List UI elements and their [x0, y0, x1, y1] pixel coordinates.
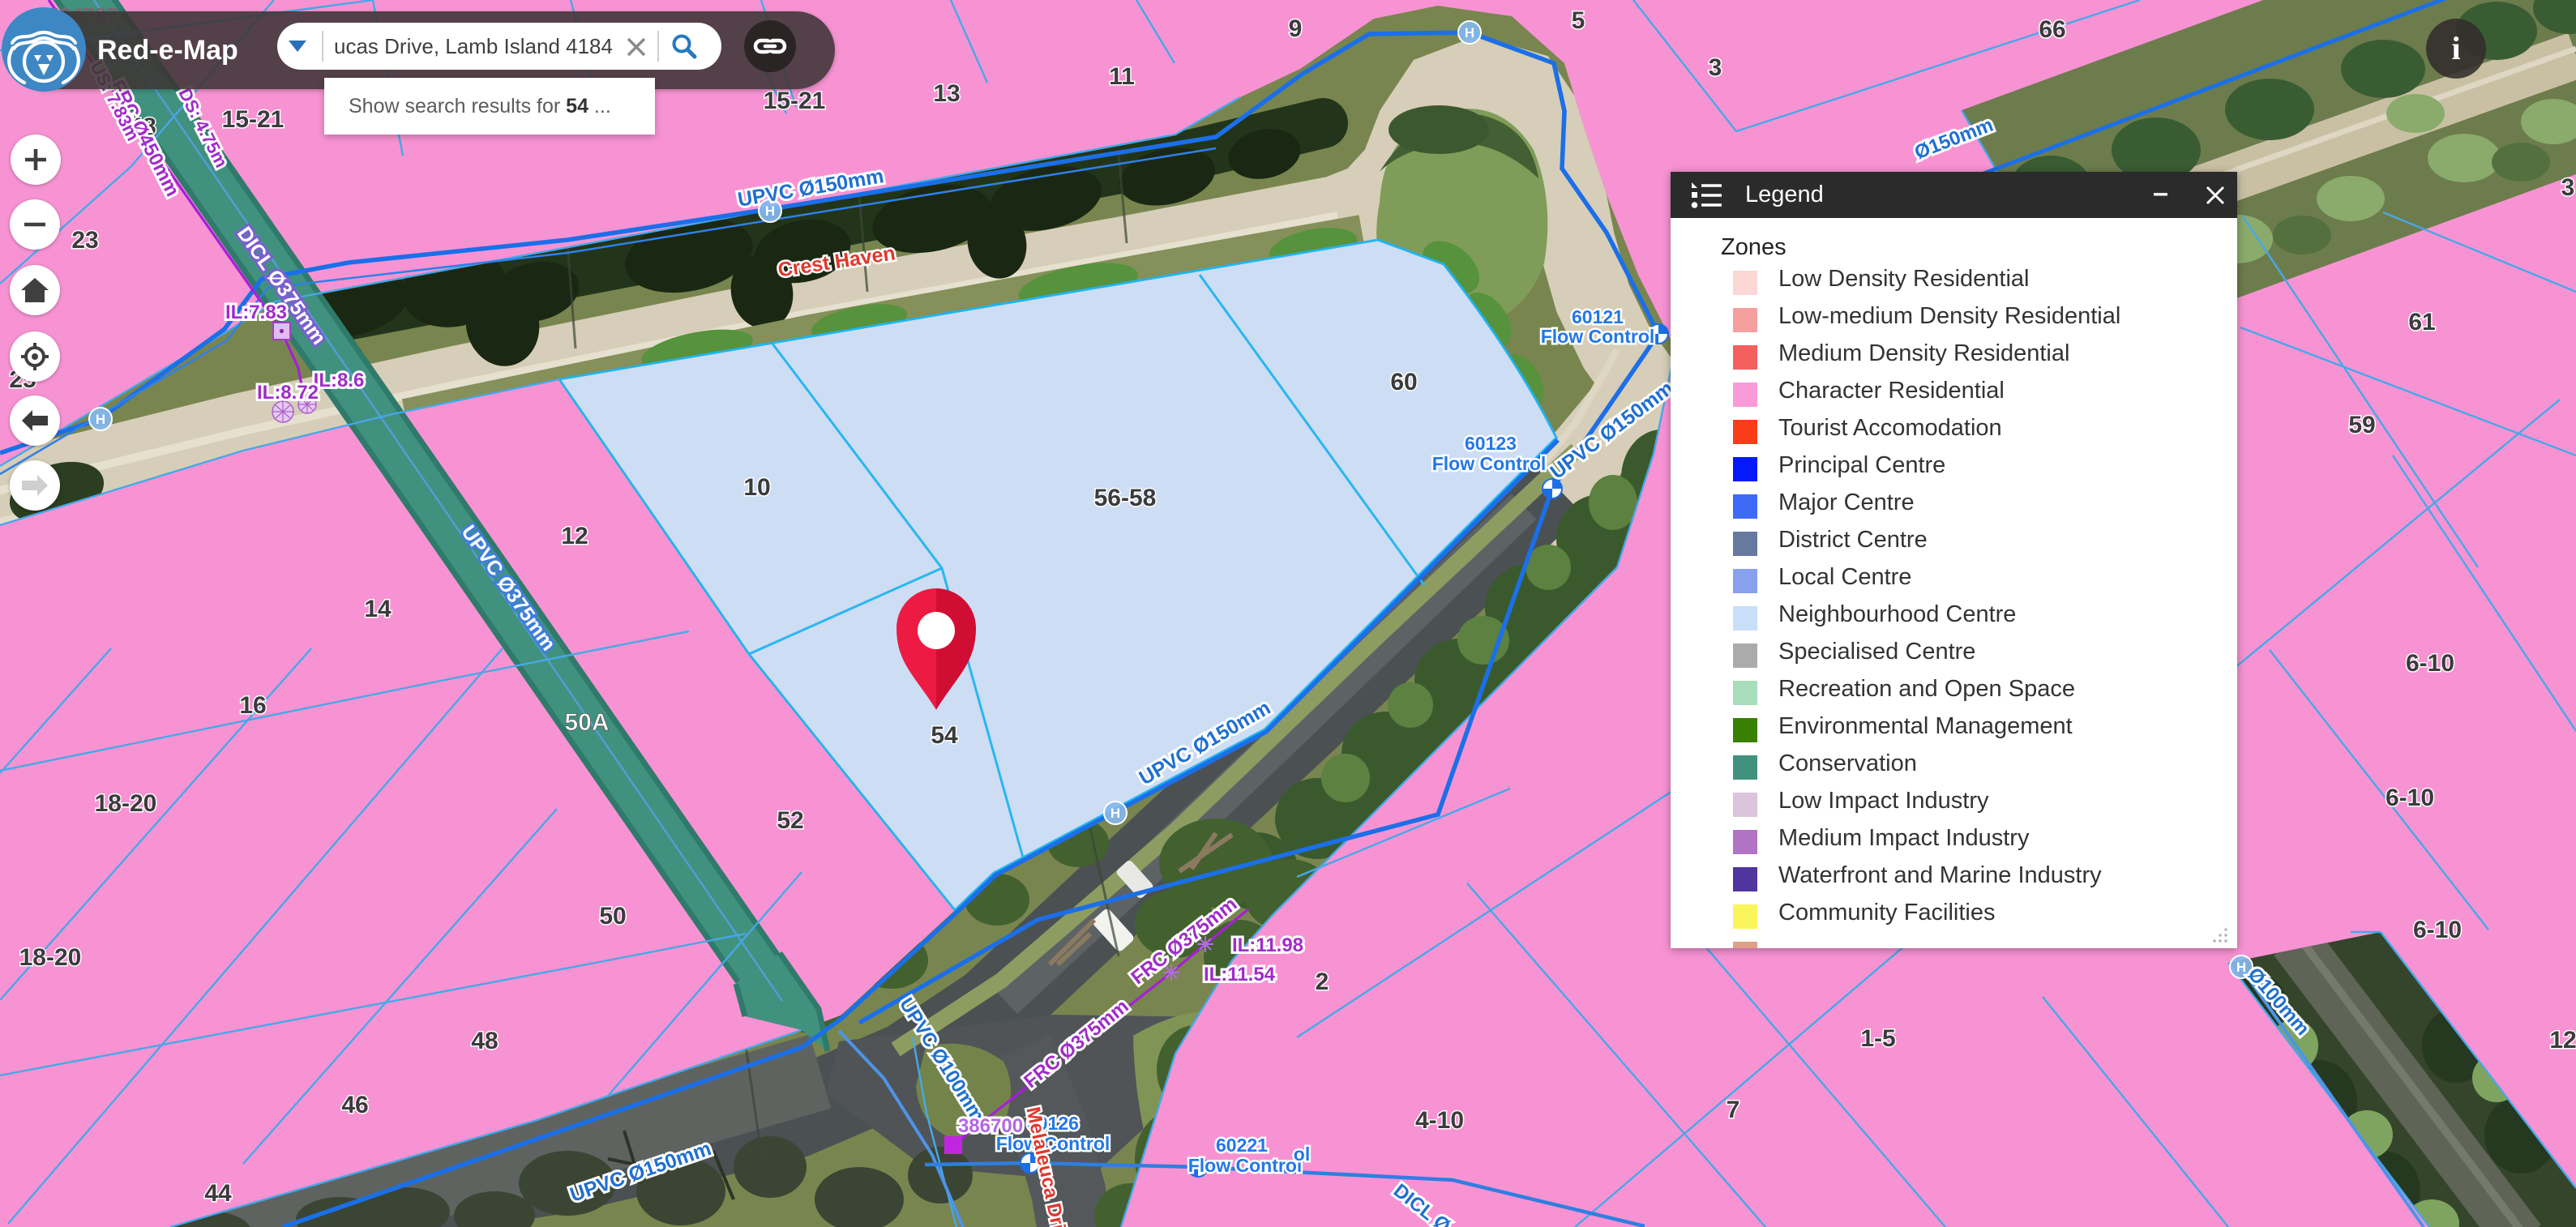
svg-text:H: H [1465, 25, 1474, 41]
svg-text:ol: ol [1294, 1144, 1310, 1165]
svg-text:13: 13 [933, 80, 960, 107]
svg-text:IL:8.6: IL:8.6 [314, 370, 365, 391]
svg-text:Flow Control: Flow Control [1432, 453, 1547, 474]
svg-text:IL:7.83: IL:7.83 [225, 301, 287, 323]
svg-text:60123: 60123 [1465, 433, 1517, 454]
svg-text:H: H [96, 412, 105, 427]
svg-text:60121: 60121 [1572, 306, 1624, 327]
svg-text:6-10: 6-10 [2386, 785, 2434, 811]
svg-text:23: 23 [71, 227, 98, 254]
svg-text:4-10: 4-10 [1415, 1107, 1464, 1134]
svg-text:3: 3 [1709, 54, 1722, 81]
svg-text:9: 9 [1289, 15, 1303, 42]
svg-text:11: 11 [1109, 63, 1135, 90]
svg-text:15-21: 15-21 [764, 88, 826, 114]
svg-text:IL:8.72: IL:8.72 [257, 382, 319, 404]
svg-text:10: 10 [743, 474, 770, 501]
svg-text:6-10: 6-10 [2413, 917, 2462, 943]
svg-text:50: 50 [599, 903, 626, 930]
svg-text:48: 48 [471, 1028, 498, 1054]
svg-text:12: 12 [2549, 1027, 2576, 1054]
svg-text:14: 14 [364, 596, 392, 622]
svg-text:60221: 60221 [1216, 1135, 1268, 1156]
svg-text:18-20: 18-20 [95, 790, 157, 817]
svg-text:46: 46 [341, 1092, 368, 1118]
svg-text:61: 61 [2408, 309, 2435, 336]
svg-text:Flow Control: Flow Control [1541, 326, 1655, 347]
svg-text:54: 54 [931, 722, 958, 749]
svg-text:7: 7 [1727, 1097, 1740, 1123]
svg-text:H: H [1110, 806, 1120, 821]
svg-text:66: 66 [2039, 16, 2065, 43]
svg-text:6-10: 6-10 [2406, 650, 2454, 677]
svg-text:59: 59 [2348, 412, 2375, 438]
svg-text:56-58: 56-58 [1094, 485, 1157, 511]
svg-text:16: 16 [239, 692, 266, 719]
svg-text:18-20: 18-20 [19, 944, 82, 971]
svg-text:H: H [2236, 960, 2246, 975]
svg-text:12: 12 [561, 523, 588, 549]
svg-text:52: 52 [777, 807, 803, 834]
svg-text:44: 44 [204, 1180, 232, 1207]
svg-text:50A: 50A [564, 709, 609, 736]
svg-text:5: 5 [1572, 7, 1585, 34]
svg-text:IL:11.98: IL:11.98 [1232, 934, 1303, 956]
svg-text:60: 60 [1390, 369, 1417, 395]
svg-text:15-21: 15-21 [222, 106, 285, 133]
svg-text:Flow Control: Flow Control [1188, 1155, 1303, 1176]
svg-text:1-5: 1-5 [1860, 1025, 1895, 1052]
svg-text:2: 2 [1316, 968, 1329, 995]
svg-text:IL:11.54: IL:11.54 [1204, 964, 1276, 985]
svg-text:3: 3 [2561, 174, 2575, 201]
